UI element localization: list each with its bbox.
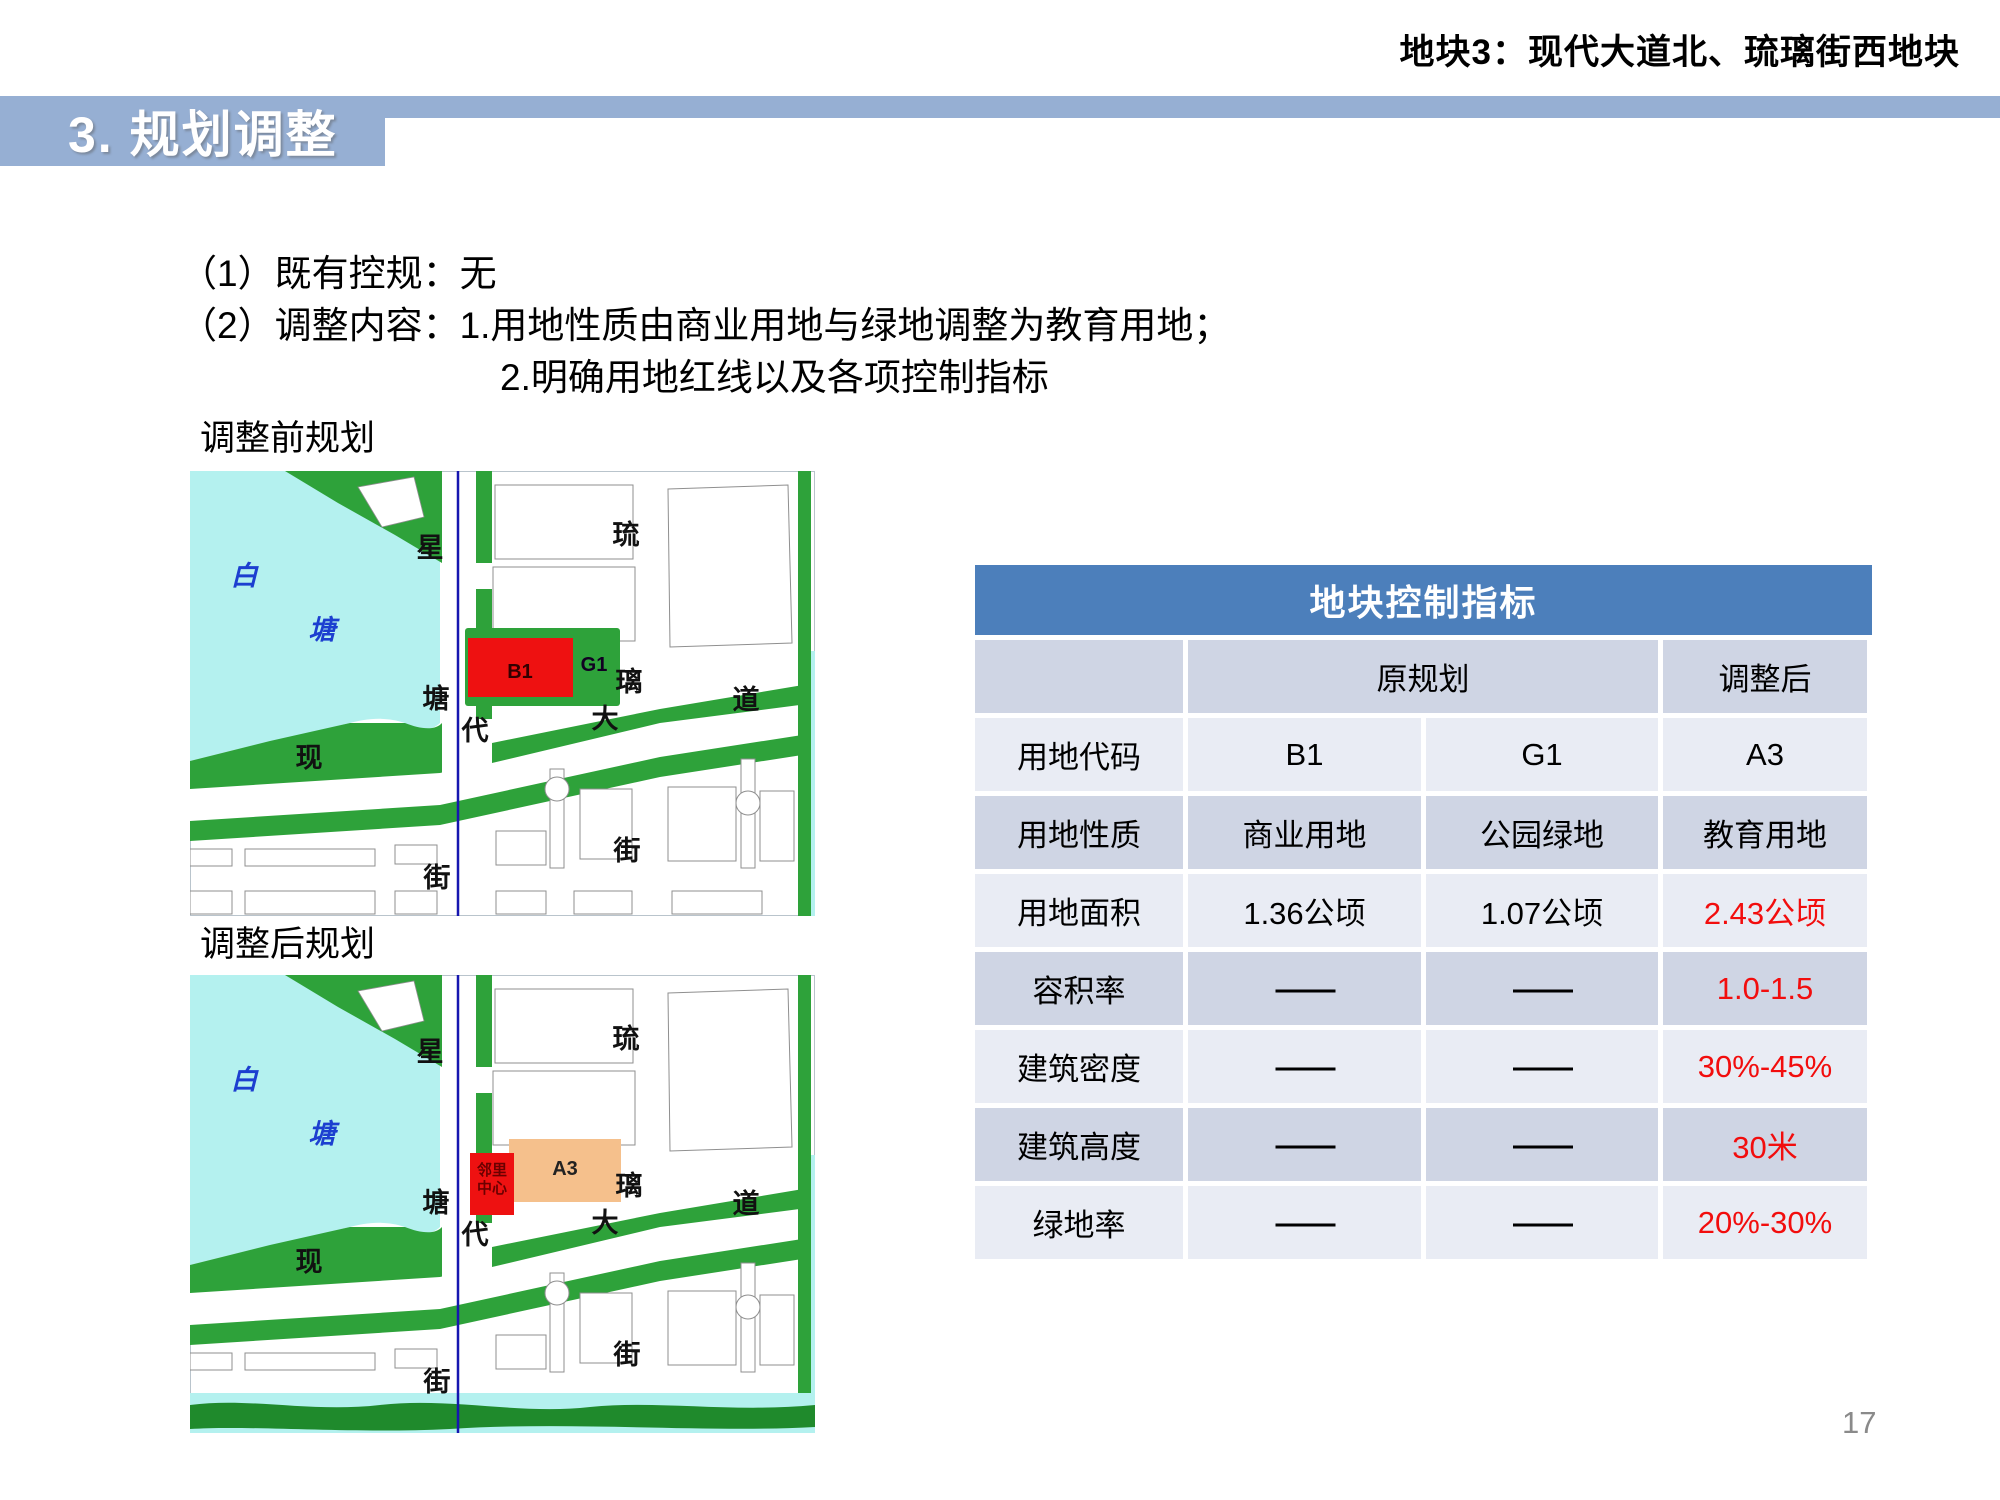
svg-text:街: 街 [423, 863, 451, 893]
table-cell-adjusted: 教育用地 [1663, 796, 1867, 869]
table-cell-original-2: 1.07公顷 [1426, 874, 1658, 947]
map-after-label: 调整后规划 [200, 916, 375, 967]
svg-text:中心: 中心 [477, 1179, 507, 1197]
svg-text:A3: A3 [552, 1158, 578, 1180]
body-line-adjust-content-2: 2.明确用地红线以及各项控制指标 [500, 347, 1049, 401]
svg-text:璃: 璃 [616, 667, 643, 697]
svg-text:白: 白 [231, 561, 260, 591]
svg-text:琉: 琉 [613, 1023, 640, 1054]
table-colheader-original: 原规划 [1188, 640, 1658, 713]
page-header: 地块3：现代大道北、琉璃街西地块 [1400, 24, 1960, 75]
svg-text:璃: 璃 [616, 1171, 643, 1201]
table-row-label: 容积率 [975, 952, 1183, 1025]
svg-text:大: 大 [592, 704, 619, 734]
map-after-adjustment: 邻里中心A3星塘街琉璃街现代大道白塘 [190, 975, 815, 1433]
table-cell-original-2: —— [1426, 1108, 1658, 1181]
body-line-adjust-content-1: （2）调整内容：1.用地性质由商业用地与绿地调整为教育用地； [180, 295, 1230, 349]
table-row-label: 建筑密度 [975, 1030, 1183, 1103]
table-cell-adjusted: 2.43公顷 [1663, 874, 1867, 947]
svg-text:G1: G1 [581, 654, 608, 676]
table-cell-original-2: 公园绿地 [1426, 796, 1658, 869]
svg-text:星: 星 [417, 533, 444, 563]
table-row-label: 建筑高度 [975, 1108, 1183, 1181]
table-cell-original-1: —— [1188, 952, 1421, 1025]
svg-text:B1: B1 [507, 661, 533, 683]
svg-text:邻里: 邻里 [476, 1161, 507, 1179]
table-row-label: 用地代码 [975, 718, 1183, 791]
section-title-block: 3. 规划调整 [0, 96, 385, 166]
svg-text:大: 大 [592, 1208, 619, 1238]
table-cell-original-1: 1.36公顷 [1188, 874, 1421, 947]
table-cell-original-2: —— [1426, 1030, 1658, 1103]
svg-text:白: 白 [231, 1065, 260, 1095]
svg-text:现: 现 [296, 743, 323, 773]
section-title: 3. 规划调整 [0, 95, 338, 167]
table-cell-adjusted: 20%-30% [1663, 1186, 1867, 1259]
table-row-label: 绿地率 [975, 1186, 1183, 1259]
svg-text:街: 街 [613, 1340, 641, 1370]
plot-control-metrics-table: 地块控制指标 原规划 调整后 用地代码B1G1A3用地性质商业用地公园绿地教育用… [975, 565, 1872, 1259]
table-cell-adjusted: 30米 [1663, 1108, 1867, 1181]
table-cell-original-1: 商业用地 [1188, 796, 1421, 869]
table-cell-original-1: —— [1188, 1186, 1421, 1259]
map-before-label: 调整前规划 [200, 410, 375, 461]
svg-text:星: 星 [417, 1037, 444, 1067]
svg-text:道: 道 [733, 1188, 760, 1219]
svg-text:道: 道 [733, 684, 760, 715]
table-colheader-adjusted: 调整后 [1663, 640, 1867, 713]
table-title: 地块控制指标 [975, 565, 1872, 635]
table-cell-adjusted: 30%-45% [1663, 1030, 1867, 1103]
body-line-existing-plan: （1）既有控规：无 [180, 243, 497, 297]
table-corner-cell [975, 640, 1183, 713]
svg-text:塘: 塘 [423, 683, 450, 714]
svg-text:街: 街 [613, 836, 641, 866]
table-cell-adjusted: 1.0-1.5 [1663, 952, 1867, 1025]
svg-text:琉: 琉 [613, 519, 640, 550]
table-row-label: 用地面积 [975, 874, 1183, 947]
svg-text:街: 街 [423, 1367, 451, 1397]
table-row-label: 用地性质 [975, 796, 1183, 869]
table-cell-original-2: G1 [1426, 718, 1658, 791]
table-cell-original-1: —— [1188, 1108, 1421, 1181]
map-before-adjustment: B1G1星塘街琉璃街现代大道白塘 [190, 471, 815, 916]
table-cell-original-1: B1 [1188, 718, 1421, 791]
svg-text:塘: 塘 [423, 1187, 450, 1218]
table-cell-original-1: —— [1188, 1030, 1421, 1103]
page-number: 17 [1842, 1405, 1876, 1441]
svg-text:现: 现 [296, 1247, 323, 1277]
table-cell-original-2: —— [1426, 1186, 1658, 1259]
svg-text:代: 代 [461, 1220, 489, 1250]
table-cell-original-2: —— [1426, 952, 1658, 1025]
table-grid: 原规划 调整后 用地代码B1G1A3用地性质商业用地公园绿地教育用地用地面积1.… [975, 640, 1872, 1259]
slide: 地块3：现代大道北、琉璃街西地块 3. 规划调整 （1）既有控规：无 （2）调整… [0, 0, 2000, 1500]
svg-text:代: 代 [461, 716, 489, 746]
table-cell-adjusted: A3 [1663, 718, 1867, 791]
